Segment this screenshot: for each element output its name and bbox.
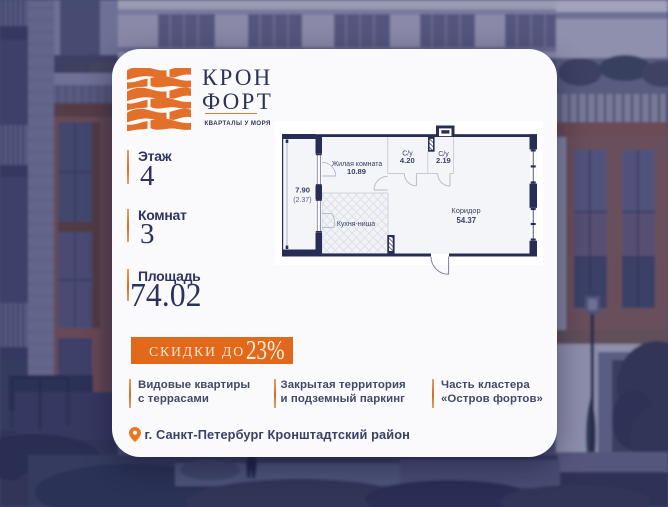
svg-text:10.89: 10.89 — [347, 167, 366, 176]
svg-text:2.19: 2.19 — [436, 156, 451, 165]
svg-text:54.37: 54.37 — [457, 216, 477, 225]
svg-text:4.20: 4.20 — [400, 156, 415, 165]
svg-text:7.90: 7.90 — [295, 186, 310, 195]
svg-text:(2.37): (2.37) — [293, 197, 311, 204]
svg-text:Кухня-ниша: Кухня-ниша — [337, 221, 375, 228]
svg-text:Коридор: Коридор — [451, 206, 480, 215]
